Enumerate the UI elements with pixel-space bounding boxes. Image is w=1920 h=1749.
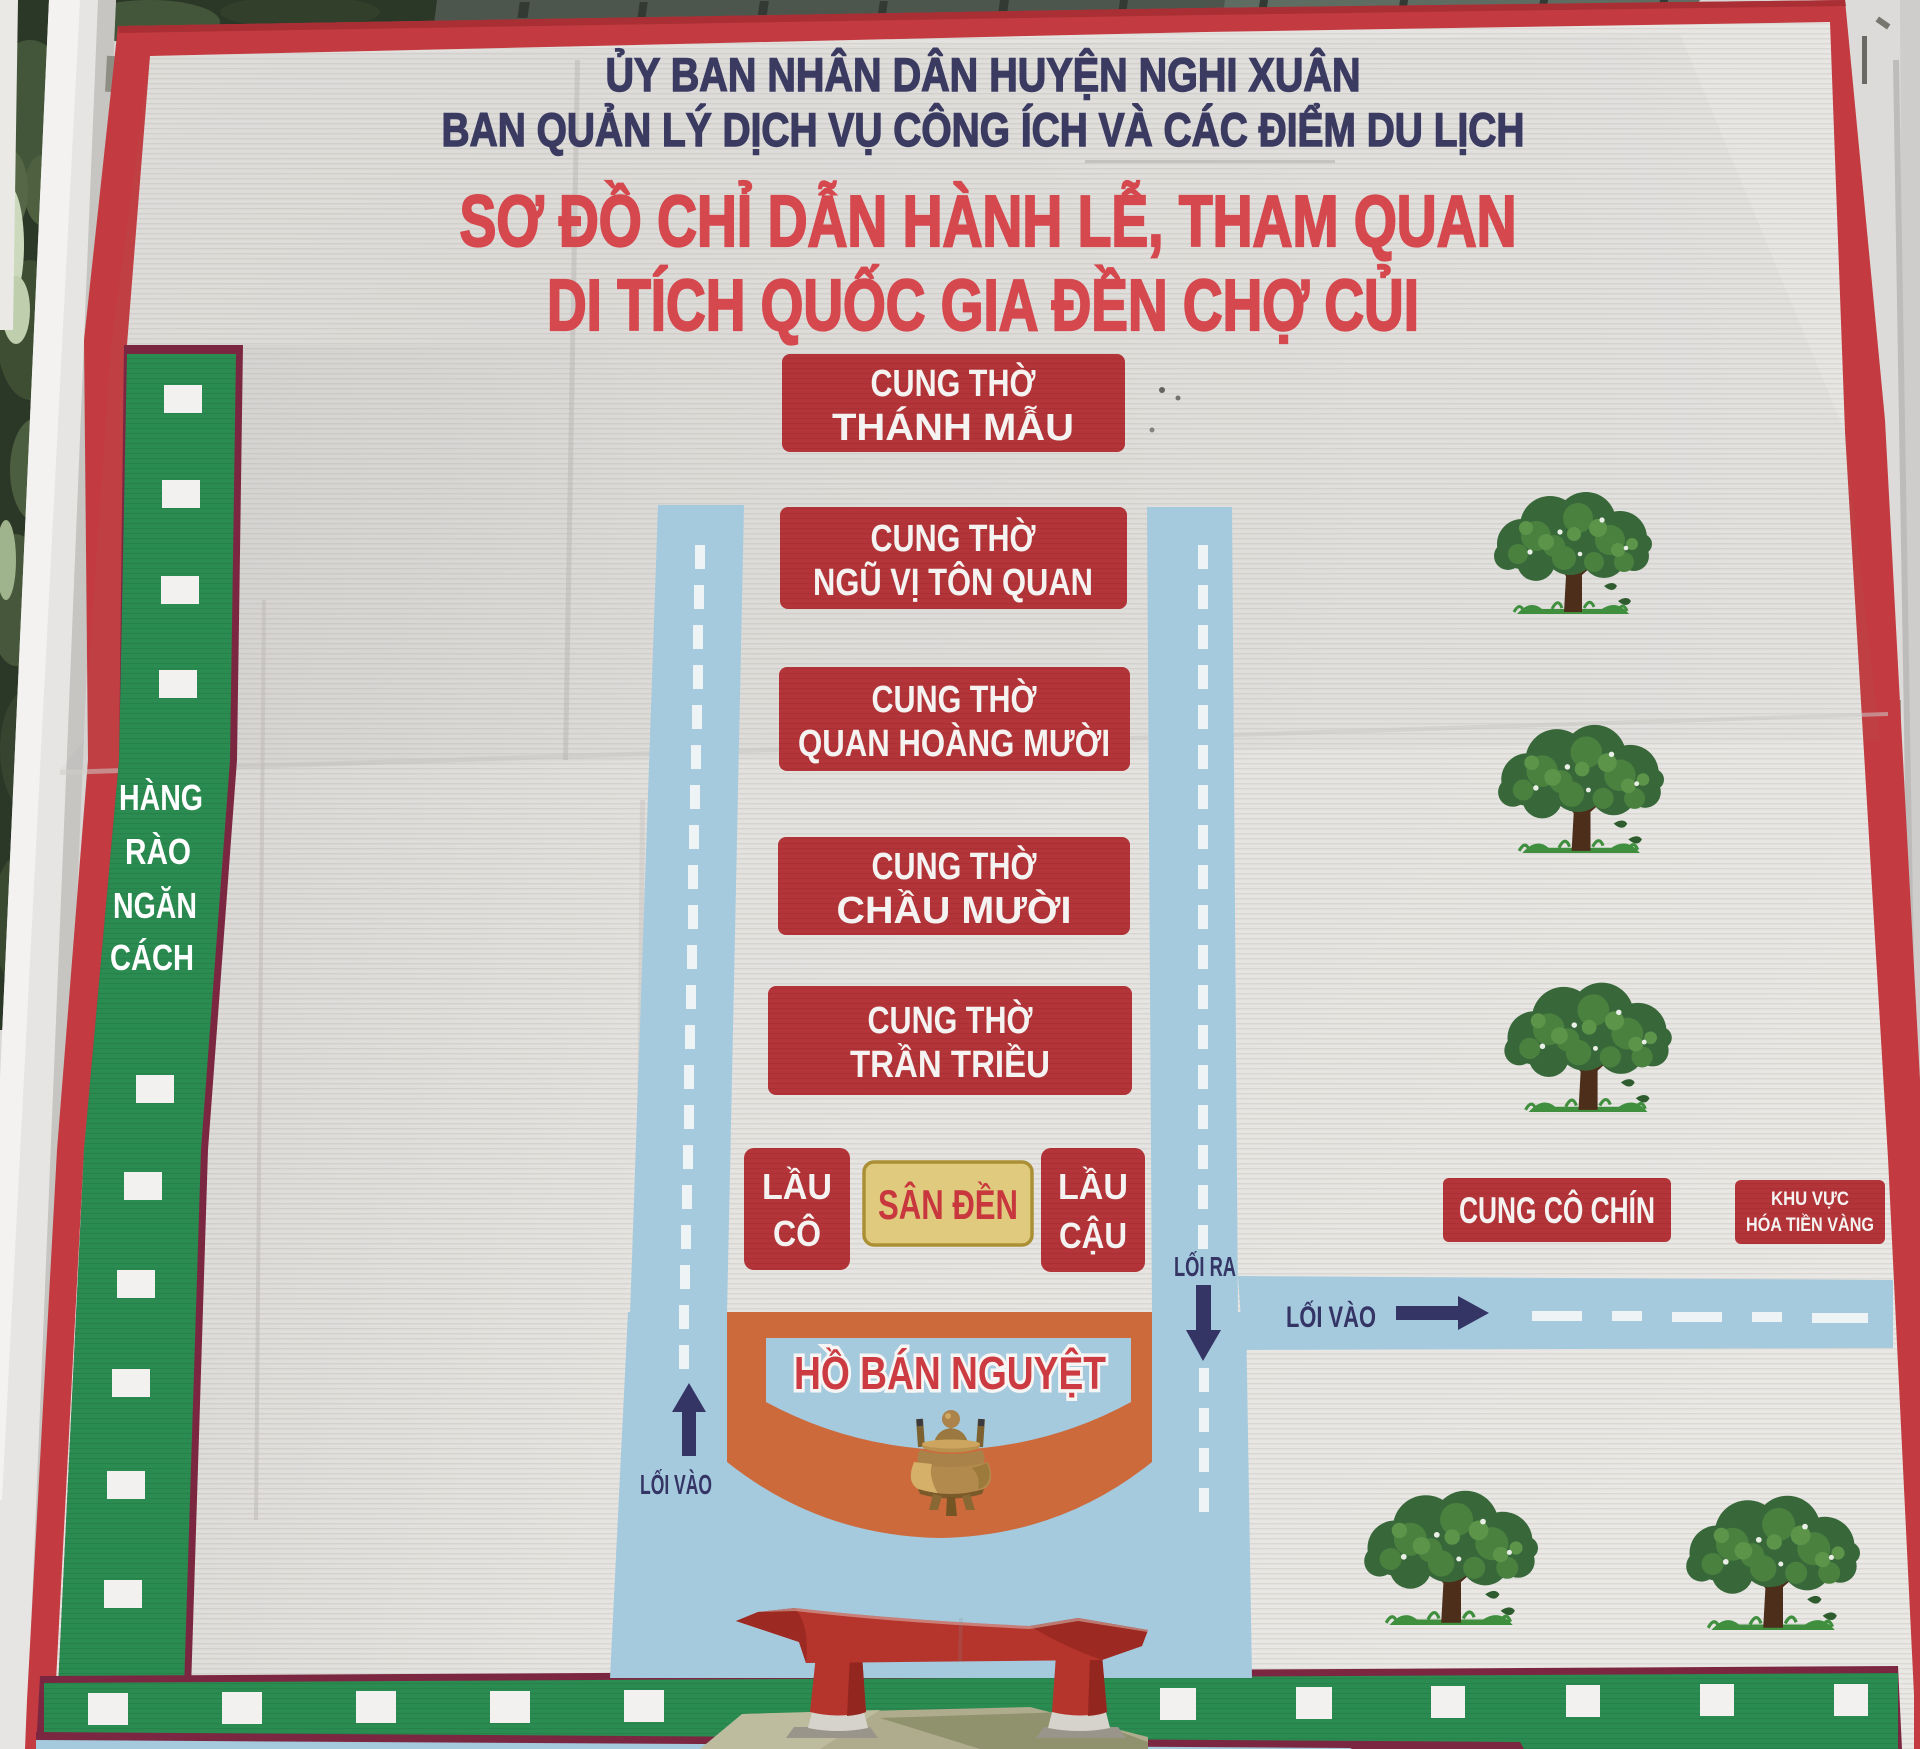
svg-text:LỐI RA: LỐI RA	[1174, 1250, 1236, 1282]
svg-text:RÀO: RÀO	[125, 831, 191, 872]
svg-text:CUNG THỜ: CUNG THỜ	[871, 516, 1036, 560]
svg-text:LỐI VÀO: LỐI VÀO	[1286, 1300, 1376, 1334]
svg-text:CUNG THỜ: CUNG THỜ	[872, 677, 1037, 721]
svg-text:SƠ ĐỒ CHỈ DẪN HÀNH LỄ, THAM QU: SƠ ĐỒ CHỈ DẪN HÀNH LỄ, THAM QUAN	[460, 181, 1517, 262]
svg-text:LẦU: LẦU	[762, 1166, 832, 1207]
svg-text:CÁCH: CÁCH	[110, 937, 194, 978]
svg-text:CUNG CÔ CHÍN: CUNG CÔ CHÍN	[1459, 1189, 1655, 1231]
svg-text:THÁNH MẪU: THÁNH MẪU	[832, 405, 1074, 449]
svg-text:KHU VỰC: KHU VỰC	[1771, 1189, 1849, 1210]
svg-text:ỦY BAN NHÂN DÂN HUYỆN NGHI XUÂ: ỦY BAN NHÂN DÂN HUYỆN NGHI XUÂN	[606, 48, 1361, 101]
svg-text:HÀNG: HÀNG	[119, 777, 203, 818]
svg-text:CHẦU MƯỜI: CHẦU MƯỜI	[837, 888, 1072, 932]
svg-text:NGŨ VỊ TÔN QUAN: NGŨ VỊ TÔN QUAN	[813, 559, 1093, 604]
svg-text:CẬU: CẬU	[1059, 1214, 1127, 1256]
svg-text:TRẦN TRIỀU: TRẦN TRIỀU	[850, 1042, 1050, 1086]
svg-text:CÔ: CÔ	[773, 1212, 821, 1254]
svg-text:LỐI VÀO: LỐI VÀO	[640, 1468, 712, 1500]
svg-text:BAN QUẢN LÝ DỊCH VỤ CÔNG ÍCH V: BAN QUẢN LÝ DỊCH VỤ CÔNG ÍCH VÀ CÁC ĐIỂM…	[442, 103, 1525, 156]
svg-text:CUNG THỜ: CUNG THỜ	[868, 998, 1033, 1042]
svg-text:HÓA TIỀN VÀNG: HÓA TIỀN VÀNG	[1746, 1214, 1874, 1236]
svg-text:DI TÍCH QUỐC GIA ĐỀN CHỢ CỦI: DI TÍCH QUỐC GIA ĐỀN CHỢ CỦI	[547, 264, 1419, 346]
svg-text:NGĂN: NGĂN	[113, 885, 197, 926]
svg-text:HỒ BÁN NGUYỆT: HỒ BÁN NGUYỆT	[794, 1347, 1106, 1399]
svg-text:CUNG THỜ: CUNG THỜ	[872, 844, 1037, 888]
svg-text:LẦU: LẦU	[1058, 1166, 1128, 1207]
svg-text:CUNG THỜ: CUNG THỜ	[871, 361, 1036, 405]
svg-text:QUAN HOÀNG MƯỜI: QUAN HOÀNG MƯỜI	[798, 721, 1110, 765]
svg-text:SÂN ĐỀN: SÂN ĐỀN	[878, 1180, 1018, 1228]
